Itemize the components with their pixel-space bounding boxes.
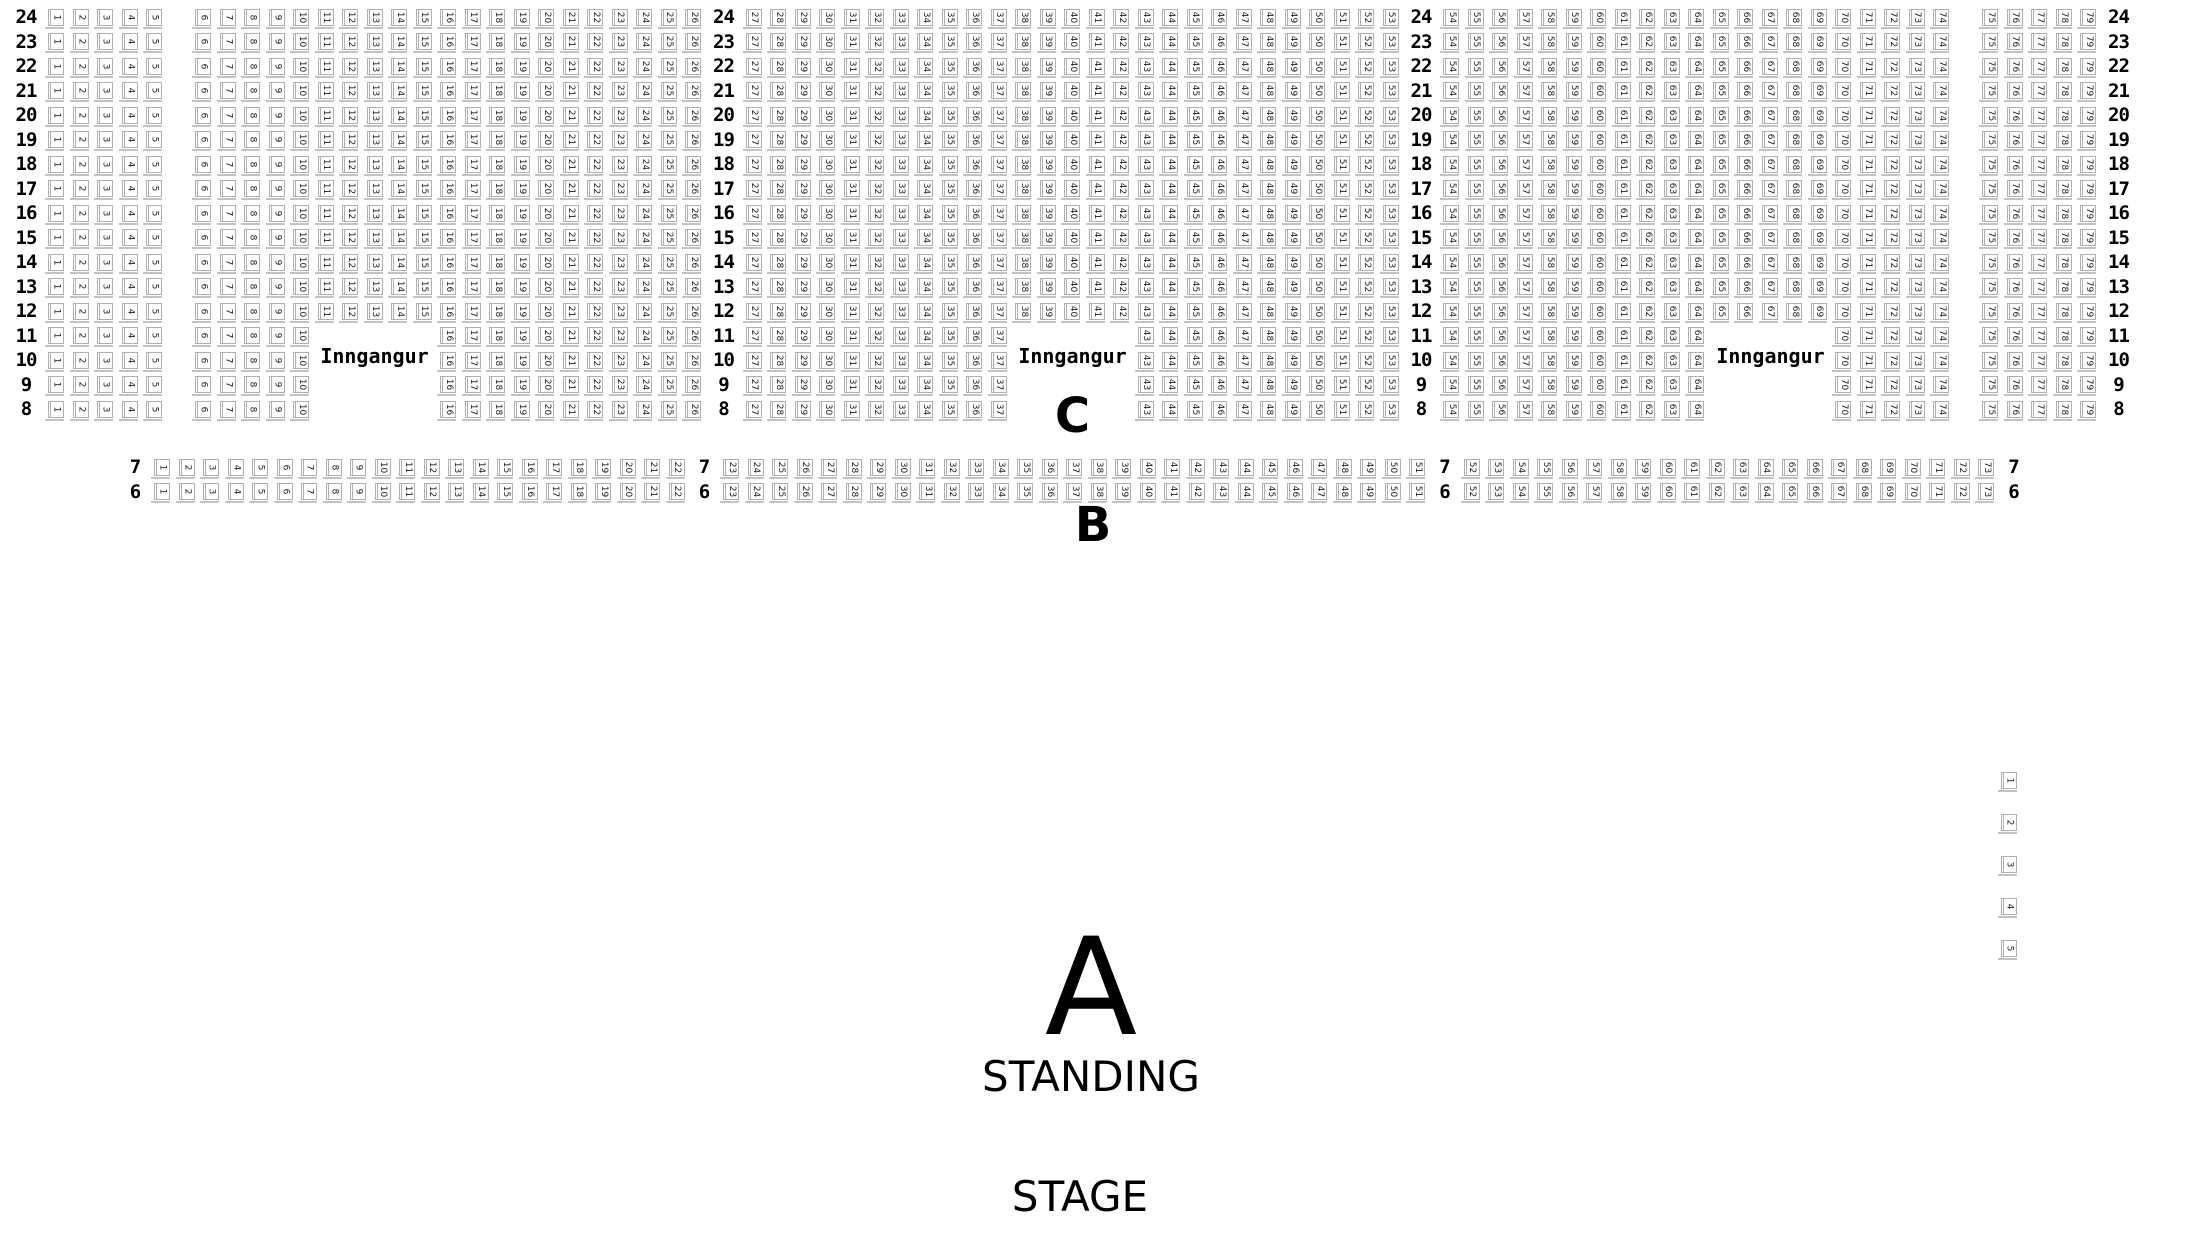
seat-16-22[interactable]: 22 bbox=[587, 205, 603, 222]
seat-11-74[interactable]: 74 bbox=[1933, 327, 1949, 344]
seat-15-35[interactable]: 35 bbox=[942, 229, 958, 246]
seat-16-40[interactable]: 40 bbox=[1064, 205, 1080, 222]
seat-12-25[interactable]: 25 bbox=[661, 303, 677, 320]
seat-9-28[interactable]: 28 bbox=[770, 376, 786, 393]
seat-14-69[interactable]: 69 bbox=[1811, 254, 1827, 271]
seat-19-67[interactable]: 67 bbox=[1762, 131, 1778, 148]
seat-24-13[interactable]: 13 bbox=[367, 9, 383, 26]
seat-15-56[interactable]: 56 bbox=[1492, 229, 1508, 246]
seat-16-59[interactable]: 59 bbox=[1566, 205, 1582, 222]
seat-20-33[interactable]: 33 bbox=[893, 107, 909, 124]
seat-24-78[interactable]: 78 bbox=[2056, 9, 2072, 26]
seat-12-73[interactable]: 73 bbox=[1909, 303, 1925, 320]
seat-15-3[interactable]: 3 bbox=[97, 229, 113, 246]
seat-17-57[interactable]: 57 bbox=[1517, 180, 1533, 197]
seat-16-5[interactable]: 5 bbox=[146, 205, 162, 222]
seat-12-37[interactable]: 37 bbox=[991, 303, 1007, 320]
seat-17-38[interactable]: 38 bbox=[1015, 180, 1031, 197]
seat-17-46[interactable]: 46 bbox=[1211, 180, 1227, 197]
seat-9-33[interactable]: 33 bbox=[893, 376, 909, 393]
seat-18-56[interactable]: 56 bbox=[1492, 156, 1508, 173]
seat-21-11[interactable]: 11 bbox=[318, 82, 334, 99]
seat-22-1[interactable]: 1 bbox=[48, 58, 64, 75]
seat-23-38[interactable]: 38 bbox=[1015, 33, 1031, 50]
seat-side-3[interactable]: 3 bbox=[2001, 856, 2017, 873]
seat-6-61[interactable]: 61 bbox=[1684, 483, 1700, 500]
seat-8-28[interactable]: 28 bbox=[770, 401, 786, 418]
seat-12-66[interactable]: 66 bbox=[1737, 303, 1753, 320]
seat-9-26[interactable]: 26 bbox=[685, 376, 701, 393]
seat-12-12[interactable]: 12 bbox=[342, 303, 358, 320]
seat-24-5[interactable]: 5 bbox=[146, 9, 162, 26]
seat-13-21[interactable]: 21 bbox=[563, 278, 579, 295]
seat-14-45[interactable]: 45 bbox=[1187, 254, 1203, 271]
seat-10-29[interactable]: 29 bbox=[795, 352, 811, 369]
seat-6-66[interactable]: 66 bbox=[1807, 483, 1823, 500]
seat-23-52[interactable]: 52 bbox=[1358, 33, 1374, 50]
seat-20-70[interactable]: 70 bbox=[1835, 107, 1851, 124]
seat-12-20[interactable]: 20 bbox=[538, 303, 554, 320]
seat-17-22[interactable]: 22 bbox=[587, 180, 603, 197]
seat-12-61[interactable]: 61 bbox=[1615, 303, 1631, 320]
seat-17-35[interactable]: 35 bbox=[942, 180, 958, 197]
seat-16-30[interactable]: 30 bbox=[819, 205, 835, 222]
seat-24-16[interactable]: 16 bbox=[440, 9, 456, 26]
seat-23-79[interactable]: 79 bbox=[2080, 33, 2096, 50]
seat-7-27[interactable]: 27 bbox=[821, 459, 837, 476]
seat-15-46[interactable]: 46 bbox=[1211, 229, 1227, 246]
seat-24-43[interactable]: 43 bbox=[1138, 9, 1154, 26]
seat-24-51[interactable]: 51 bbox=[1334, 9, 1350, 26]
seat-15-18[interactable]: 18 bbox=[489, 229, 505, 246]
seat-21-74[interactable]: 74 bbox=[1933, 82, 1949, 99]
seat-7-26[interactable]: 26 bbox=[797, 459, 813, 476]
seat-17-20[interactable]: 20 bbox=[538, 180, 554, 197]
seat-11-30[interactable]: 30 bbox=[819, 327, 835, 344]
seat-18-66[interactable]: 66 bbox=[1737, 156, 1753, 173]
seat-22-64[interactable]: 64 bbox=[1688, 58, 1704, 75]
seat-18-42[interactable]: 42 bbox=[1113, 156, 1129, 173]
seat-24-22[interactable]: 22 bbox=[587, 9, 603, 26]
seat-23-58[interactable]: 58 bbox=[1541, 33, 1557, 50]
seat-8-51[interactable]: 51 bbox=[1334, 401, 1350, 418]
seat-6-36[interactable]: 36 bbox=[1042, 483, 1058, 500]
seat-15-32[interactable]: 32 bbox=[868, 229, 884, 246]
seat-17-6[interactable]: 6 bbox=[195, 180, 211, 197]
seat-20-60[interactable]: 60 bbox=[1590, 107, 1606, 124]
seat-19-19[interactable]: 19 bbox=[514, 131, 530, 148]
seat-17-33[interactable]: 33 bbox=[893, 180, 909, 197]
seat-16-67[interactable]: 67 bbox=[1762, 205, 1778, 222]
seat-20-27[interactable]: 27 bbox=[746, 107, 762, 124]
seat-22-26[interactable]: 26 bbox=[685, 58, 701, 75]
seat-8-27[interactable]: 27 bbox=[746, 401, 762, 418]
seat-8-57[interactable]: 57 bbox=[1517, 401, 1533, 418]
seat-17-55[interactable]: 55 bbox=[1468, 180, 1484, 197]
seat-24-34[interactable]: 34 bbox=[917, 9, 933, 26]
seat-11-31[interactable]: 31 bbox=[844, 327, 860, 344]
seat-21-3[interactable]: 3 bbox=[97, 82, 113, 99]
seat-9-55[interactable]: 55 bbox=[1468, 376, 1484, 393]
seat-13-37[interactable]: 37 bbox=[991, 278, 1007, 295]
seat-24-35[interactable]: 35 bbox=[942, 9, 958, 26]
seat-22-13[interactable]: 13 bbox=[367, 58, 383, 75]
seat-19-5[interactable]: 5 bbox=[146, 131, 162, 148]
seat-22-57[interactable]: 57 bbox=[1517, 58, 1533, 75]
seat-6-27[interactable]: 27 bbox=[821, 483, 837, 500]
seat-17-3[interactable]: 3 bbox=[97, 180, 113, 197]
seat-7-68[interactable]: 68 bbox=[1856, 459, 1872, 476]
seat-14-71[interactable]: 71 bbox=[1860, 254, 1876, 271]
seat-13-3[interactable]: 3 bbox=[97, 278, 113, 295]
seat-8-55[interactable]: 55 bbox=[1468, 401, 1484, 418]
seat-9-72[interactable]: 72 bbox=[1884, 376, 1900, 393]
seat-13-46[interactable]: 46 bbox=[1211, 278, 1227, 295]
seat-13-65[interactable]: 65 bbox=[1713, 278, 1729, 295]
seat-24-29[interactable]: 29 bbox=[795, 9, 811, 26]
seat-9-52[interactable]: 52 bbox=[1358, 376, 1374, 393]
seat-15-4[interactable]: 4 bbox=[122, 229, 138, 246]
seat-16-7[interactable]: 7 bbox=[220, 205, 236, 222]
seat-12-35[interactable]: 35 bbox=[942, 303, 958, 320]
seat-23-46[interactable]: 46 bbox=[1211, 33, 1227, 50]
seat-24-79[interactable]: 79 bbox=[2080, 9, 2096, 26]
seat-9-59[interactable]: 59 bbox=[1566, 376, 1582, 393]
seat-6-20[interactable]: 20 bbox=[620, 483, 636, 500]
seat-16-49[interactable]: 49 bbox=[1285, 205, 1301, 222]
seat-14-34[interactable]: 34 bbox=[917, 254, 933, 271]
seat-12-19[interactable]: 19 bbox=[514, 303, 530, 320]
seat-22-38[interactable]: 38 bbox=[1015, 58, 1031, 75]
seat-7-51[interactable]: 51 bbox=[1409, 459, 1425, 476]
seat-20-61[interactable]: 61 bbox=[1615, 107, 1631, 124]
seat-17-24[interactable]: 24 bbox=[636, 180, 652, 197]
seat-6-68[interactable]: 68 bbox=[1856, 483, 1872, 500]
seat-7-49[interactable]: 49 bbox=[1360, 459, 1376, 476]
seat-15-47[interactable]: 47 bbox=[1236, 229, 1252, 246]
seat-15-66[interactable]: 66 bbox=[1737, 229, 1753, 246]
seat-14-37[interactable]: 37 bbox=[991, 254, 1007, 271]
seat-22-27[interactable]: 27 bbox=[746, 58, 762, 75]
seat-11-5[interactable]: 5 bbox=[146, 327, 162, 344]
seat-19-2[interactable]: 2 bbox=[73, 131, 89, 148]
seat-14-59[interactable]: 59 bbox=[1566, 254, 1582, 271]
seat-15-12[interactable]: 12 bbox=[342, 229, 358, 246]
seat-8-33[interactable]: 33 bbox=[893, 401, 909, 418]
seat-9-58[interactable]: 58 bbox=[1541, 376, 1557, 393]
seat-17-59[interactable]: 59 bbox=[1566, 180, 1582, 197]
seat-21-41[interactable]: 41 bbox=[1089, 82, 1105, 99]
seat-24-63[interactable]: 63 bbox=[1664, 9, 1680, 26]
seat-21-10[interactable]: 10 bbox=[293, 82, 309, 99]
seat-20-41[interactable]: 41 bbox=[1089, 107, 1105, 124]
seat-22-11[interactable]: 11 bbox=[318, 58, 334, 75]
seat-16-32[interactable]: 32 bbox=[868, 205, 884, 222]
seat-10-62[interactable]: 62 bbox=[1639, 352, 1655, 369]
seat-18-10[interactable]: 10 bbox=[293, 156, 309, 173]
seat-8-24[interactable]: 24 bbox=[636, 401, 652, 418]
seat-15-27[interactable]: 27 bbox=[746, 229, 762, 246]
seat-9-27[interactable]: 27 bbox=[746, 376, 762, 393]
seat-20-23[interactable]: 23 bbox=[612, 107, 628, 124]
seat-21-26[interactable]: 26 bbox=[685, 82, 701, 99]
seat-12-14[interactable]: 14 bbox=[391, 303, 407, 320]
seat-23-76[interactable]: 76 bbox=[2007, 33, 2023, 50]
seat-9-43[interactable]: 43 bbox=[1138, 376, 1154, 393]
seat-18-15[interactable]: 15 bbox=[416, 156, 432, 173]
seat-21-22[interactable]: 22 bbox=[587, 82, 603, 99]
seat-23-6[interactable]: 6 bbox=[195, 33, 211, 50]
seat-17-40[interactable]: 40 bbox=[1064, 180, 1080, 197]
seat-16-34[interactable]: 34 bbox=[917, 205, 933, 222]
seat-24-48[interactable]: 48 bbox=[1260, 9, 1276, 26]
seat-7-61[interactable]: 61 bbox=[1684, 459, 1700, 476]
seat-8-23[interactable]: 23 bbox=[612, 401, 628, 418]
seat-19-11[interactable]: 11 bbox=[318, 131, 334, 148]
seat-20-46[interactable]: 46 bbox=[1211, 107, 1227, 124]
seat-16-73[interactable]: 73 bbox=[1909, 205, 1925, 222]
seat-22-32[interactable]: 32 bbox=[868, 58, 884, 75]
seat-13-73[interactable]: 73 bbox=[1909, 278, 1925, 295]
seat-6-21[interactable]: 21 bbox=[644, 483, 660, 500]
seat-19-3[interactable]: 3 bbox=[97, 131, 113, 148]
seat-6-69[interactable]: 69 bbox=[1880, 483, 1896, 500]
seat-18-60[interactable]: 60 bbox=[1590, 156, 1606, 173]
seat-20-28[interactable]: 28 bbox=[770, 107, 786, 124]
seat-12-49[interactable]: 49 bbox=[1285, 303, 1301, 320]
seat-12-9[interactable]: 9 bbox=[269, 303, 285, 320]
seat-8-45[interactable]: 45 bbox=[1187, 401, 1203, 418]
seat-11-45[interactable]: 45 bbox=[1187, 327, 1203, 344]
seat-11-61[interactable]: 61 bbox=[1615, 327, 1631, 344]
seat-24-71[interactable]: 71 bbox=[1860, 9, 1876, 26]
seat-15-24[interactable]: 24 bbox=[636, 229, 652, 246]
seat-12-18[interactable]: 18 bbox=[489, 303, 505, 320]
seat-8-10[interactable]: 10 bbox=[293, 401, 309, 418]
seat-21-19[interactable]: 19 bbox=[514, 82, 530, 99]
seat-18-20[interactable]: 20 bbox=[538, 156, 554, 173]
seat-23-71[interactable]: 71 bbox=[1860, 33, 1876, 50]
seat-20-30[interactable]: 30 bbox=[819, 107, 835, 124]
seat-13-47[interactable]: 47 bbox=[1236, 278, 1252, 295]
seat-6-40[interactable]: 40 bbox=[1140, 483, 1156, 500]
seat-19-77[interactable]: 77 bbox=[2031, 131, 2047, 148]
seat-12-3[interactable]: 3 bbox=[97, 303, 113, 320]
seat-24-39[interactable]: 39 bbox=[1040, 9, 1056, 26]
seat-19-76[interactable]: 76 bbox=[2007, 131, 2023, 148]
seat-19-16[interactable]: 16 bbox=[440, 131, 456, 148]
seat-18-72[interactable]: 72 bbox=[1884, 156, 1900, 173]
seat-20-44[interactable]: 44 bbox=[1162, 107, 1178, 124]
seat-6-55[interactable]: 55 bbox=[1537, 483, 1553, 500]
seat-19-65[interactable]: 65 bbox=[1713, 131, 1729, 148]
seat-8-48[interactable]: 48 bbox=[1260, 401, 1276, 418]
seat-18-19[interactable]: 19 bbox=[514, 156, 530, 173]
seat-6-18[interactable]: 18 bbox=[571, 483, 587, 500]
seat-14-77[interactable]: 77 bbox=[2031, 254, 2047, 271]
seat-15-71[interactable]: 71 bbox=[1860, 229, 1876, 246]
seat-15-79[interactable]: 79 bbox=[2080, 229, 2096, 246]
seat-10-49[interactable]: 49 bbox=[1285, 352, 1301, 369]
seat-24-8[interactable]: 8 bbox=[244, 9, 260, 26]
seat-10-30[interactable]: 30 bbox=[819, 352, 835, 369]
seat-19-13[interactable]: 13 bbox=[367, 131, 383, 148]
seat-17-52[interactable]: 52 bbox=[1358, 180, 1374, 197]
seat-19-12[interactable]: 12 bbox=[342, 131, 358, 148]
seat-11-73[interactable]: 73 bbox=[1909, 327, 1925, 344]
seat-7-62[interactable]: 62 bbox=[1709, 459, 1725, 476]
seat-23-16[interactable]: 16 bbox=[440, 33, 456, 50]
seat-23-59[interactable]: 59 bbox=[1566, 33, 1582, 50]
seat-12-15[interactable]: 15 bbox=[416, 303, 432, 320]
seat-15-9[interactable]: 9 bbox=[269, 229, 285, 246]
seat-13-39[interactable]: 39 bbox=[1040, 278, 1056, 295]
seat-19-48[interactable]: 48 bbox=[1260, 131, 1276, 148]
seat-12-2[interactable]: 2 bbox=[73, 303, 89, 320]
seat-6-11[interactable]: 11 bbox=[399, 483, 415, 500]
seat-17-21[interactable]: 21 bbox=[563, 180, 579, 197]
seat-16-76[interactable]: 76 bbox=[2007, 205, 2023, 222]
seat-16-4[interactable]: 4 bbox=[122, 205, 138, 222]
seat-15-17[interactable]: 17 bbox=[465, 229, 481, 246]
seat-13-59[interactable]: 59 bbox=[1566, 278, 1582, 295]
seat-10-37[interactable]: 37 bbox=[991, 352, 1007, 369]
seat-21-64[interactable]: 64 bbox=[1688, 82, 1704, 99]
seat-22-44[interactable]: 44 bbox=[1162, 58, 1178, 75]
seat-18-38[interactable]: 38 bbox=[1015, 156, 1031, 173]
seat-19-41[interactable]: 41 bbox=[1089, 131, 1105, 148]
seat-16-70[interactable]: 70 bbox=[1835, 205, 1851, 222]
seat-22-8[interactable]: 8 bbox=[244, 58, 260, 75]
seat-10-50[interactable]: 50 bbox=[1309, 352, 1325, 369]
seat-21-46[interactable]: 46 bbox=[1211, 82, 1227, 99]
seat-8-73[interactable]: 73 bbox=[1909, 401, 1925, 418]
seat-17-49[interactable]: 49 bbox=[1285, 180, 1301, 197]
seat-16-68[interactable]: 68 bbox=[1786, 205, 1802, 222]
seat-13-79[interactable]: 79 bbox=[2080, 278, 2096, 295]
seat-16-43[interactable]: 43 bbox=[1138, 205, 1154, 222]
seat-16-17[interactable]: 17 bbox=[465, 205, 481, 222]
seat-6-59[interactable]: 59 bbox=[1635, 483, 1651, 500]
seat-12-55[interactable]: 55 bbox=[1468, 303, 1484, 320]
seat-22-52[interactable]: 52 bbox=[1358, 58, 1374, 75]
seat-6-14[interactable]: 14 bbox=[473, 483, 489, 500]
seat-16-62[interactable]: 62 bbox=[1639, 205, 1655, 222]
seat-13-22[interactable]: 22 bbox=[587, 278, 603, 295]
seat-15-65[interactable]: 65 bbox=[1713, 229, 1729, 246]
seat-15-58[interactable]: 58 bbox=[1541, 229, 1557, 246]
seat-16-57[interactable]: 57 bbox=[1517, 205, 1533, 222]
seat-8-71[interactable]: 71 bbox=[1860, 401, 1876, 418]
seat-15-14[interactable]: 14 bbox=[391, 229, 407, 246]
seat-13-31[interactable]: 31 bbox=[844, 278, 860, 295]
seat-18-21[interactable]: 21 bbox=[563, 156, 579, 173]
seat-20-36[interactable]: 36 bbox=[966, 107, 982, 124]
seat-18-43[interactable]: 43 bbox=[1138, 156, 1154, 173]
seat-17-32[interactable]: 32 bbox=[868, 180, 884, 197]
seat-9-7[interactable]: 7 bbox=[220, 376, 236, 393]
seat-19-39[interactable]: 39 bbox=[1040, 131, 1056, 148]
seat-15-21[interactable]: 21 bbox=[563, 229, 579, 246]
seat-7-25[interactable]: 25 bbox=[772, 459, 788, 476]
seat-17-5[interactable]: 5 bbox=[146, 180, 162, 197]
seat-6-58[interactable]: 58 bbox=[1611, 483, 1627, 500]
seat-22-14[interactable]: 14 bbox=[391, 58, 407, 75]
seat-18-17[interactable]: 17 bbox=[465, 156, 481, 173]
seat-17-13[interactable]: 13 bbox=[367, 180, 383, 197]
seat-12-62[interactable]: 62 bbox=[1639, 303, 1655, 320]
seat-16-33[interactable]: 33 bbox=[893, 205, 909, 222]
seat-10-9[interactable]: 9 bbox=[269, 352, 285, 369]
seat-23-10[interactable]: 10 bbox=[293, 33, 309, 50]
seat-21-25[interactable]: 25 bbox=[661, 82, 677, 99]
seat-17-66[interactable]: 66 bbox=[1737, 180, 1753, 197]
seat-16-75[interactable]: 75 bbox=[1982, 205, 1998, 222]
seat-15-34[interactable]: 34 bbox=[917, 229, 933, 246]
seat-8-16[interactable]: 16 bbox=[440, 401, 456, 418]
seat-7-32[interactable]: 32 bbox=[944, 459, 960, 476]
seat-20-34[interactable]: 34 bbox=[917, 107, 933, 124]
seat-20-66[interactable]: 66 bbox=[1737, 107, 1753, 124]
seat-14-53[interactable]: 53 bbox=[1383, 254, 1399, 271]
seat-19-66[interactable]: 66 bbox=[1737, 131, 1753, 148]
seat-6-23[interactable]: 23 bbox=[723, 483, 739, 500]
seat-18-50[interactable]: 50 bbox=[1309, 156, 1325, 173]
seat-10-16[interactable]: 16 bbox=[440, 352, 456, 369]
seat-6-48[interactable]: 48 bbox=[1336, 483, 1352, 500]
seat-17-60[interactable]: 60 bbox=[1590, 180, 1606, 197]
seat-7-45[interactable]: 45 bbox=[1262, 459, 1278, 476]
seat-14-20[interactable]: 20 bbox=[538, 254, 554, 271]
seat-16-13[interactable]: 13 bbox=[367, 205, 383, 222]
seat-7-36[interactable]: 36 bbox=[1042, 459, 1058, 476]
seat-14-47[interactable]: 47 bbox=[1236, 254, 1252, 271]
seat-17-75[interactable]: 75 bbox=[1982, 180, 1998, 197]
seat-10-51[interactable]: 51 bbox=[1334, 352, 1350, 369]
seat-21-1[interactable]: 1 bbox=[48, 82, 64, 99]
seat-16-2[interactable]: 2 bbox=[73, 205, 89, 222]
seat-21-70[interactable]: 70 bbox=[1835, 82, 1851, 99]
seat-20-16[interactable]: 16 bbox=[440, 107, 456, 124]
seat-6-70[interactable]: 70 bbox=[1905, 483, 1921, 500]
seat-17-16[interactable]: 16 bbox=[440, 180, 456, 197]
seat-18-67[interactable]: 67 bbox=[1762, 156, 1778, 173]
seat-14-75[interactable]: 75 bbox=[1982, 254, 1998, 271]
seat-17-9[interactable]: 9 bbox=[269, 180, 285, 197]
seat-8-5[interactable]: 5 bbox=[146, 401, 162, 418]
seat-6-63[interactable]: 63 bbox=[1733, 483, 1749, 500]
seat-22-15[interactable]: 15 bbox=[416, 58, 432, 75]
seat-12-36[interactable]: 36 bbox=[966, 303, 982, 320]
seat-16-21[interactable]: 21 bbox=[563, 205, 579, 222]
seat-11-51[interactable]: 51 bbox=[1334, 327, 1350, 344]
seat-19-73[interactable]: 73 bbox=[1909, 131, 1925, 148]
seat-8-59[interactable]: 59 bbox=[1566, 401, 1582, 418]
seat-21-39[interactable]: 39 bbox=[1040, 82, 1056, 99]
seat-18-33[interactable]: 33 bbox=[893, 156, 909, 173]
seat-23-32[interactable]: 32 bbox=[868, 33, 884, 50]
seat-6-16[interactable]: 16 bbox=[522, 483, 538, 500]
seat-7-34[interactable]: 34 bbox=[993, 459, 1009, 476]
seat-10-5[interactable]: 5 bbox=[146, 352, 162, 369]
seat-21-61[interactable]: 61 bbox=[1615, 82, 1631, 99]
seat-13-28[interactable]: 28 bbox=[770, 278, 786, 295]
seat-17-58[interactable]: 58 bbox=[1541, 180, 1557, 197]
seat-22-40[interactable]: 40 bbox=[1064, 58, 1080, 75]
seat-20-6[interactable]: 6 bbox=[195, 107, 211, 124]
seat-21-60[interactable]: 60 bbox=[1590, 82, 1606, 99]
seat-17-42[interactable]: 42 bbox=[1113, 180, 1129, 197]
